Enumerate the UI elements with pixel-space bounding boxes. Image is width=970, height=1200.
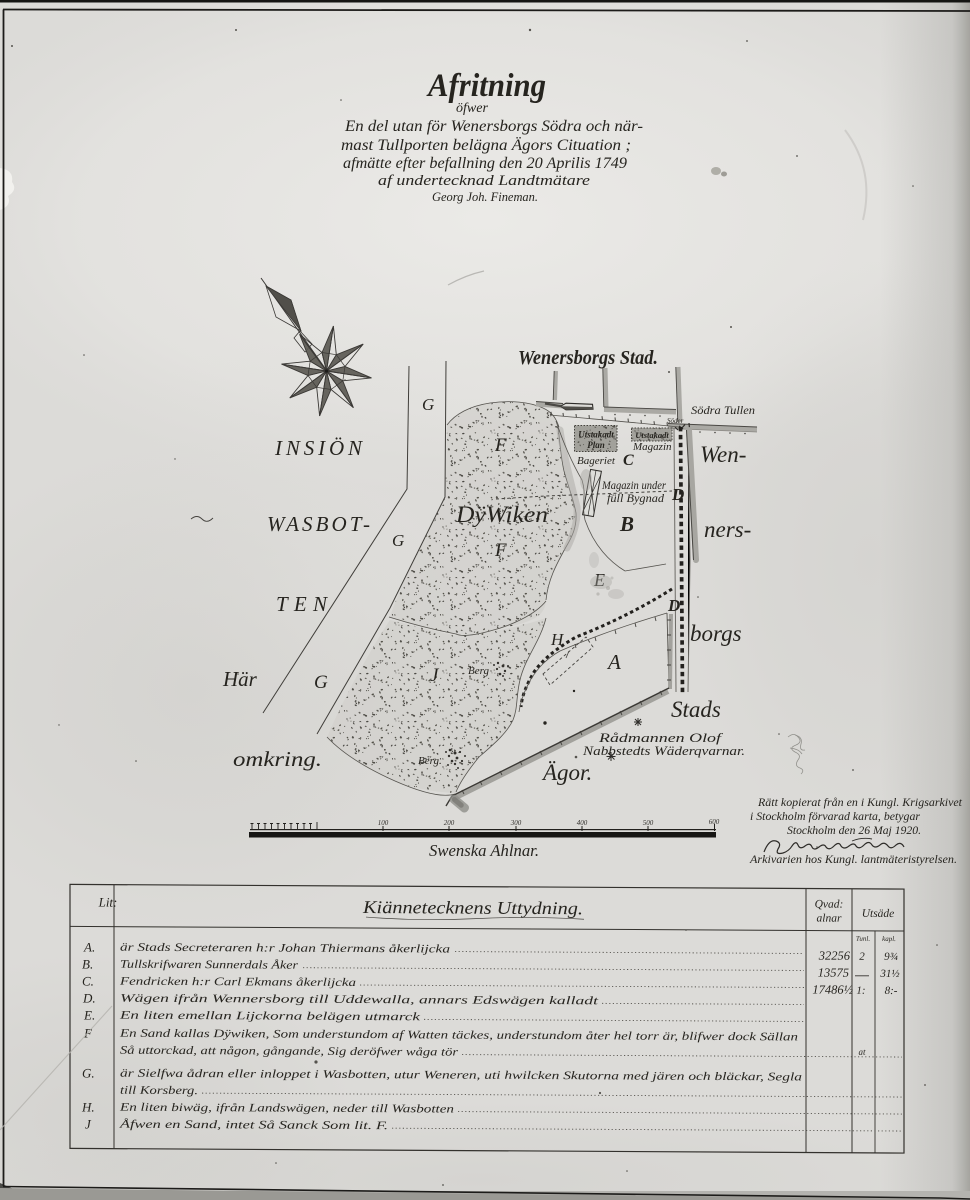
- svg-text:WASBOT-: WASBOT-: [267, 512, 372, 536]
- svg-text:Lit:: Lit:: [98, 895, 118, 910]
- svg-text:G: G: [314, 672, 328, 693]
- svg-text:Swenska Ahlnar.: Swenska Ahlnar.: [429, 841, 539, 860]
- svg-text:Nabbstedts Wäderqvarnar.: Nabbstedts Wäderqvarnar.: [582, 743, 745, 758]
- svg-text:Afritning: Afritning: [426, 68, 546, 104]
- svg-text:Tullskrifwaren Sunnerdals Åker: Tullskrifwaren Sunnerdals Åker: [120, 957, 299, 972]
- svg-text:Fendricken h:r Carl Ekmans åke: Fendricken h:r Carl Ekmans åkerlijcka: [119, 975, 357, 989]
- svg-text:31½: 31½: [879, 968, 899, 980]
- svg-text:Wen-: Wen-: [700, 442, 746, 467]
- svg-text:En liten biwäg, ifrån Landswäg: En liten biwäg, ifrån Landswägen, neder …: [119, 1101, 455, 1116]
- svg-text:En del utan för Wenersborgs Sö: En del utan för Wenersborgs Södra och nä…: [344, 118, 643, 135]
- svg-text:Utstakadt: Utstakadt: [578, 430, 614, 440]
- svg-text:Här: Här: [222, 667, 258, 691]
- svg-text:Så uttorckad, att någon, gånga: Så uttorckad, att någon, gångande, Sig d…: [120, 1044, 459, 1059]
- svg-text:9¾: 9¾: [884, 951, 898, 963]
- svg-text:Stads: Stads: [671, 697, 721, 722]
- svg-text:Södra Tullen: Södra Tullen: [691, 403, 755, 417]
- svg-text:Plan: Plan: [587, 440, 605, 450]
- svg-text:100: 100: [378, 819, 389, 827]
- svg-text:400: 400: [577, 819, 588, 827]
- svg-text:Georg Joh. Fineman.: Georg Joh. Fineman.: [432, 190, 538, 204]
- svg-text:at: at: [858, 1047, 865, 1057]
- svg-text:H.: H.: [81, 1099, 95, 1114]
- svg-text:G: G: [422, 395, 434, 414]
- svg-text:Arkivarien hos Kungl. lantmäte: Arkivarien hos Kungl. lantmäteristyrelse…: [749, 852, 957, 866]
- svg-text:Magazin under: Magazin under: [601, 480, 666, 492]
- svg-text:mast Tullporten belägna Ägors: mast Tullporten belägna Ägors Cituation …: [341, 136, 631, 154]
- svg-text:En liten emellan Lijckorna bel: En liten emellan Lijckorna belägen utmar…: [119, 1010, 422, 1024]
- svg-text:Stockholm den 26 Maj 1920.: Stockholm den 26 Maj 1920.: [787, 823, 921, 837]
- svg-text:Utstakadt: Utstakadt: [635, 430, 669, 440]
- svg-text:Qvad:: Qvad:: [815, 899, 844, 911]
- svg-text:1:: 1:: [856, 985, 865, 997]
- svg-text:alnar: alnar: [817, 913, 842, 925]
- svg-text:A: A: [606, 650, 621, 674]
- svg-text:af undertecknad Landtmätare: af undertecknad Landtmätare: [378, 173, 590, 189]
- svg-text:Berg.: Berg.: [418, 755, 442, 767]
- svg-text:är Stads Secreteraren h:r Joha: är Stads Secreteraren h:r Johan Thierman…: [120, 941, 450, 956]
- svg-text:G.: G.: [82, 1065, 95, 1080]
- svg-text:D: D: [667, 596, 680, 615]
- svg-text:13575: 13575: [818, 966, 849, 980]
- svg-text:17486½: 17486½: [812, 983, 853, 997]
- svg-text:600: 600: [709, 818, 720, 826]
- svg-text:A.: A.: [83, 939, 95, 954]
- svg-text:öfwer: öfwer: [456, 101, 488, 116]
- svg-text:afmätte efter befallning den 2: afmätte efter befallning den 20 Aprilis …: [343, 155, 627, 172]
- svg-text:D.: D.: [82, 990, 96, 1005]
- svg-text:500: 500: [643, 819, 654, 827]
- svg-text:D: D: [671, 485, 684, 504]
- svg-text:borgs: borgs: [690, 621, 742, 646]
- svg-text:Ägor.: Ägor.: [541, 760, 592, 785]
- svg-text:C: C: [623, 452, 634, 469]
- svg-text:Bageriet: Bageriet: [577, 455, 616, 467]
- svg-text:ners-: ners-: [704, 517, 751, 542]
- svg-text:2: 2: [859, 951, 865, 963]
- svg-text:E.: E.: [83, 1007, 95, 1022]
- svg-text:TEN: TEN: [276, 592, 330, 616]
- svg-text:Rätt kopierat från en i Kungl.: Rätt kopierat från en i Kungl. Krigsarki…: [757, 795, 963, 809]
- svg-text:INSIÖN: INSIÖN: [274, 436, 365, 460]
- svg-text:32256: 32256: [818, 949, 851, 963]
- svg-text:füll Bygnad: füll Bygnad: [607, 493, 664, 505]
- svg-text:till Korsberg.: till Korsberg.: [120, 1085, 198, 1097]
- svg-text:Tunl.: Tunl.: [856, 935, 870, 943]
- svg-text:300: 300: [510, 819, 522, 827]
- svg-text:Söder: Söder: [667, 417, 684, 425]
- svg-text:F: F: [494, 540, 507, 561]
- svg-text:DÿWiken: DÿWiken: [455, 502, 548, 527]
- svg-text:Utsäde: Utsäde: [862, 908, 895, 920]
- svg-text:kapl.: kapl.: [882, 935, 896, 943]
- svg-text:G: G: [392, 531, 404, 550]
- svg-text:F: F: [494, 435, 507, 456]
- svg-text:Kiännetecknens Uttydning.: Kiännetecknens Uttydning.: [362, 897, 583, 918]
- svg-text:i Stockholm förvarad karta, be: i Stockholm förvarad karta, betygar: [750, 809, 920, 823]
- svg-text:omkring.: omkring.: [233, 747, 322, 771]
- svg-text:B.: B.: [82, 956, 93, 971]
- svg-text:Magazin: Magazin: [632, 441, 672, 453]
- svg-text:H: H: [550, 630, 565, 649]
- svg-text:Wenersborgs Stad.: Wenersborgs Stad.: [518, 347, 658, 369]
- svg-text:B: B: [619, 512, 634, 536]
- svg-text:8:-: 8:-: [885, 985, 898, 997]
- svg-text:200: 200: [444, 819, 455, 827]
- svg-text:Berg: Berg: [468, 665, 489, 677]
- svg-text:Åfwen en Sand, intet Så Sanck: Åfwen en Sand, intet Så Sanck Som lit. F…: [119, 1117, 388, 1133]
- svg-text:Wägen ifrån Wennersborg till U: Wägen ifrån Wennersborg till Uddewalla, …: [120, 992, 599, 1008]
- svg-text:C.: C.: [82, 973, 94, 988]
